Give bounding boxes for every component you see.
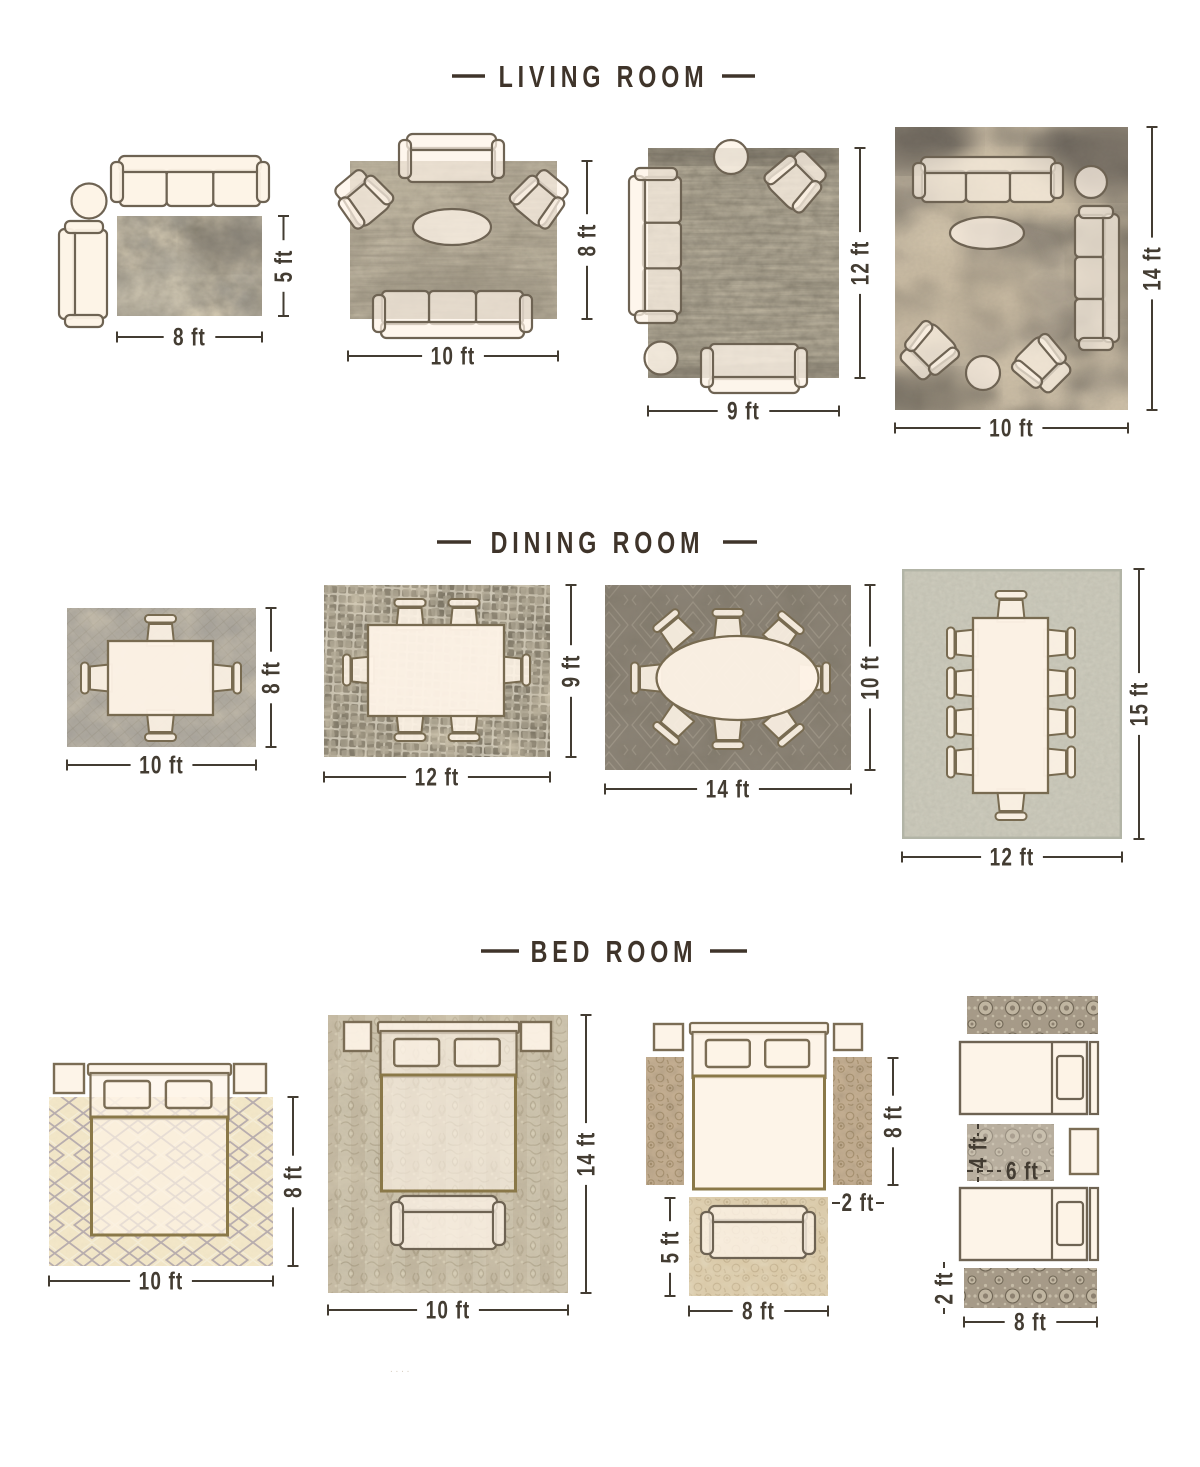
svg-text:DINING ROOM: DINING ROOM (491, 525, 705, 560)
svg-text:12 ft: 12 ft (415, 763, 460, 791)
svg-text:8 ft: 8 ft (573, 223, 601, 256)
svg-text:2 ft: 2 ft (841, 1188, 874, 1216)
svg-text:14 ft: 14 ft (706, 775, 751, 803)
svg-text:8 ft: 8 ft (1014, 1308, 1047, 1336)
svg-text:8 ft: 8 ft (279, 1165, 307, 1198)
svg-text:6 ft: 6 ft (1006, 1157, 1039, 1185)
svg-text:2 ft: 2 ft (930, 1271, 958, 1304)
svg-text:8 ft: 8 ft (879, 1105, 907, 1138)
svg-text:5 ft: 5 ft (269, 249, 297, 282)
svg-text:BED ROOM: BED ROOM (531, 934, 698, 969)
svg-text:. . . .: . . . . (390, 1364, 409, 1375)
svg-text:14 ft: 14 ft (1138, 246, 1166, 291)
svg-text:12 ft: 12 ft (846, 241, 874, 286)
svg-text:12 ft: 12 ft (990, 843, 1035, 871)
svg-text:10 ft: 10 ft (139, 751, 184, 779)
svg-text:9 ft: 9 ft (727, 397, 760, 425)
svg-text:14 ft: 14 ft (572, 1132, 600, 1177)
svg-text:10 ft: 10 ft (139, 1267, 184, 1295)
svg-text:4 ft: 4 ft (964, 1135, 992, 1168)
svg-text:10 ft: 10 ft (856, 655, 884, 700)
svg-text:5 ft: 5 ft (656, 1230, 684, 1263)
svg-text:10 ft: 10 ft (426, 1296, 471, 1324)
svg-text:8 ft: 8 ft (257, 661, 285, 694)
svg-text:10 ft: 10 ft (989, 414, 1034, 442)
svg-text:9 ft: 9 ft (557, 654, 585, 687)
svg-text:8 ft: 8 ft (742, 1297, 775, 1325)
svg-text:8 ft: 8 ft (173, 323, 206, 351)
svg-text:LIVING ROOM: LIVING ROOM (499, 59, 709, 94)
svg-text:10 ft: 10 ft (431, 342, 476, 370)
svg-text:15 ft: 15 ft (1125, 682, 1153, 727)
